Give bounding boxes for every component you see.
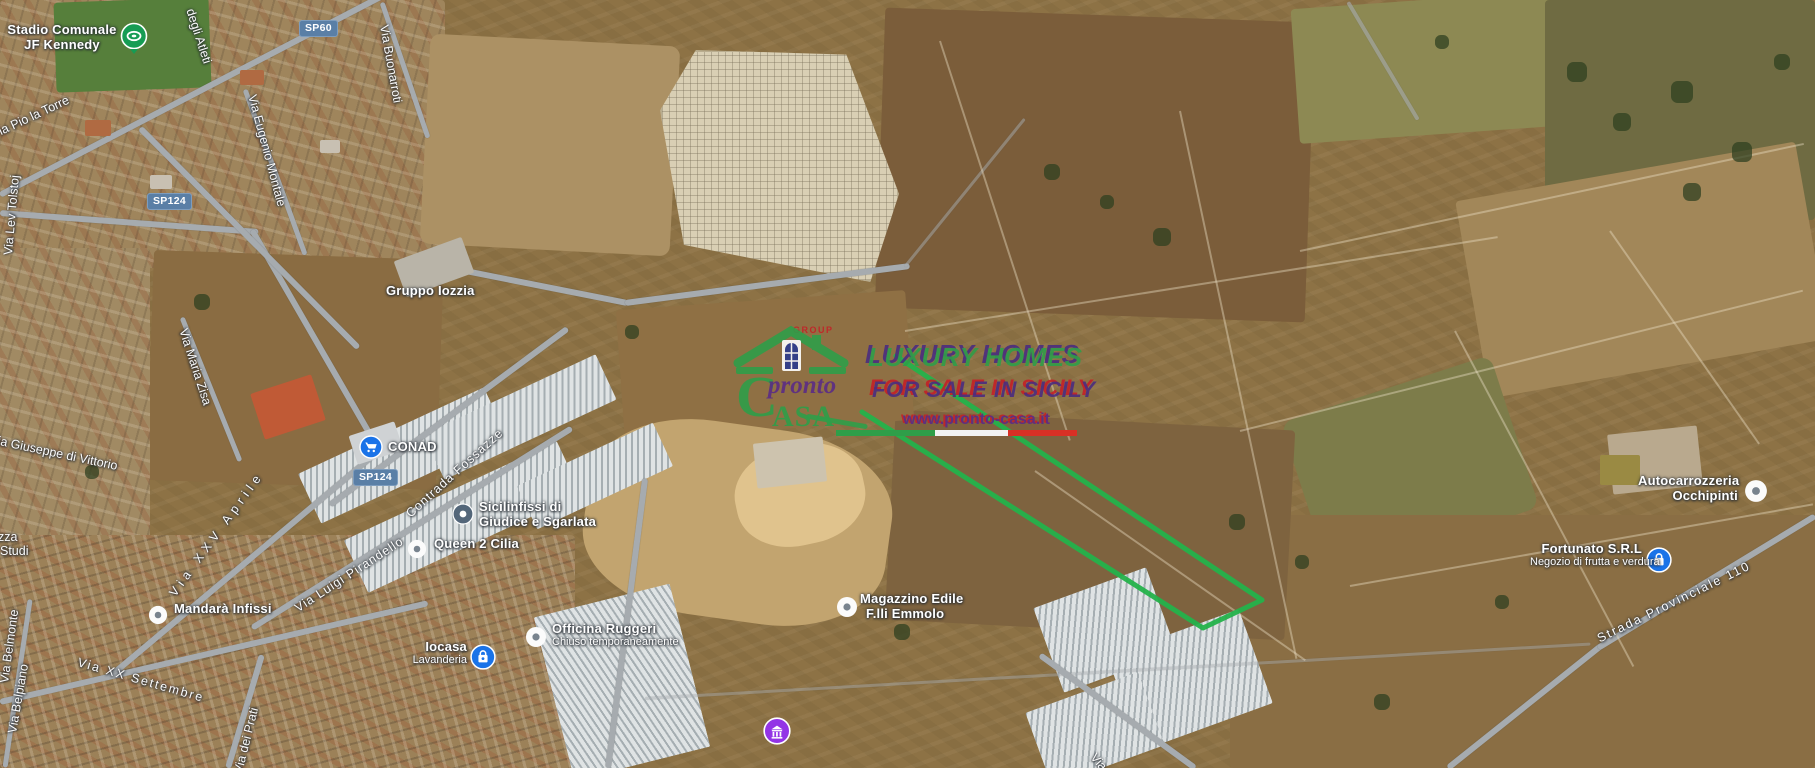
logo-pronto-text: pronto [768,372,836,400]
tagline-for-sale: FOR SALE IN SICILY [872,377,1096,403]
satellite-map[interactable]: SP60 SP124 SP124 degli Atleti Via Buonar… [0,0,1815,768]
tagline-luxury-homes: LUXURY HOMES [868,342,1083,373]
flag-bar-green [836,430,935,436]
flag-bar-white [935,430,1008,436]
website-url: www.pronto-casa.it [903,411,1050,429]
flag-bar-red [1008,430,1077,436]
